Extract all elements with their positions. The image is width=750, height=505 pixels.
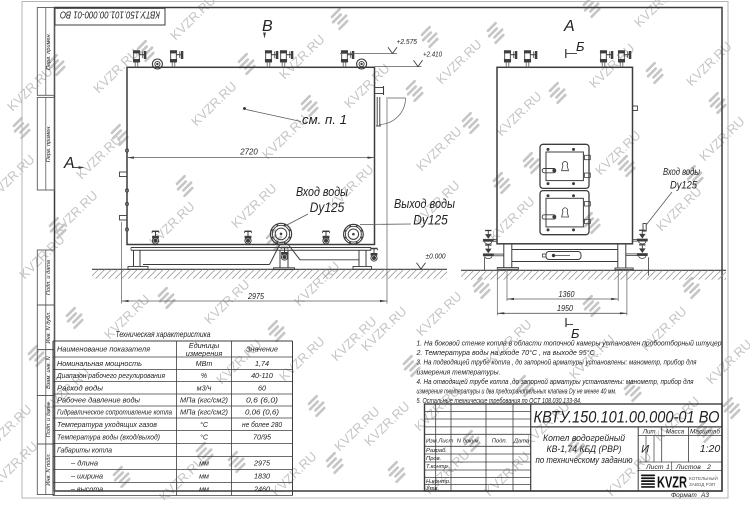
svg-text:Dy125: Dy125 [670,180,698,192]
svg-text:Н.контр.: Н.контр. [426,479,451,485]
svg-text:Перв. примен.: Перв. примен. [46,125,52,162]
svg-text:КВ-1,74 КБД (РВР): КВ-1,74 КБД (РВР) [547,444,622,454]
svg-text:– ширина: – ширина [70,472,103,481]
svg-text:КВТУ.150.101.00.000-01 ВО: КВТУ.150.101.00.000-01 ВО [60,9,160,21]
svg-text:2: 2 [706,464,711,471]
svg-text:KVZR: KVZR [657,475,687,492]
svg-text:2720: 2720 [239,148,258,157]
svg-text:3. На подводящей трубе котла: 3. На подводящей трубе котла , до запорн… [417,358,697,367]
svg-text:Габариты котла: Габариты котла [57,446,112,455]
svg-text:Вход воды: Вход воды [663,167,700,178]
svg-text:Подп.: Подп. [492,439,507,445]
svg-text:измерения температуры и два пр: измерения температуры и два предохраните… [417,387,617,396]
svg-text:1360: 1360 [559,290,576,299]
svg-text:Расход воды: Расход воды [57,383,104,392]
svg-text:1. На боковой стенке котла в: 1. На боковой стенке котла в области топ… [417,339,722,348]
svg-text:60: 60 [258,383,266,392]
svg-text:Dy125: Dy125 [413,213,448,228]
svg-text:1,74: 1,74 [255,359,269,368]
svg-text:Изм.Лист: Изм.Лист [426,439,453,445]
svg-text:+2.410: +2.410 [423,51,442,58]
svg-text:А: А [63,155,75,172]
svg-text:Дата: Дата [513,439,530,445]
svg-text:°С: °С [200,433,209,442]
svg-text:1: 1 [666,464,670,471]
svg-text:Лист: Лист [645,464,664,471]
svg-text:1:20: 1:20 [700,443,721,455]
svg-text:1950: 1950 [557,304,574,313]
svg-text:Подп. и дата: Подп. и дата [46,402,52,437]
svg-text:измерения температуры.: измерения температуры. [417,367,501,376]
svg-text:Масштаб: Масштаб [690,429,721,436]
svg-text:70/95: 70/95 [253,433,272,442]
svg-text:Формат: Формат [671,492,697,499]
svg-text:+2.575: +2.575 [397,39,418,46]
svg-text:2975: 2975 [253,459,271,468]
svg-text:– длина: – длина [70,459,98,468]
svg-text:Утв.: Утв. [425,486,439,492]
svg-text:0,6 (6,0): 0,6 (6,0) [246,396,278,405]
svg-text:мм: мм [199,485,209,494]
svg-text:Инв. N дубл.: Инв. N дубл. [46,311,52,343]
svg-text:Значение: Значение [246,345,278,354]
svg-text:МПа (кгс/см2): МПа (кгс/см2) [180,408,228,417]
svg-text:В: В [262,18,273,35]
svg-text:м3/ч: м3/ч [197,383,212,392]
svg-text:Вход воды: Вход воды [296,185,348,199]
svg-text:Наименование показателя: Наименование показателя [57,345,150,354]
svg-text:±0.000: ±0.000 [426,254,446,261]
svg-text:Котел водогрейный: Котел водогрейный [543,433,625,443]
svg-text:Разраб.: Разраб. [426,448,447,454]
svg-text:Инв. N подл.: Инв. N подл. [46,453,52,486]
svg-text:Техническая характеристика: Техническая характеристика [116,329,211,339]
svg-text:0,06 (0,6): 0,06 (0,6) [245,408,279,417]
svg-text:Лит.: Лит. [642,429,658,436]
svg-text:ЗАВОД РЭП: ЗАВОД РЭП [689,482,715,487]
svg-text:А3: А3 [700,492,709,499]
svg-text:КОТЕЛЬНЫЙ: КОТЕЛЬНЫЙ [689,474,718,481]
svg-text:МВт: МВт [196,359,213,368]
svg-text:А: А [563,18,575,35]
svg-text:Гидравлическое сопротивление к: Гидравлическое сопротивление котла [57,408,172,417]
svg-text:Dy125: Dy125 [310,200,345,215]
svg-text:Взам. инв. N: Взам. инв. N [46,355,52,389]
svg-text:Температура воды (вход/выход): Температура воды (вход/выход) [57,433,160,442]
svg-text:Диапазон рабочего регулировани: Диапазон рабочего регулирования [56,371,165,380]
svg-text:Рабочее давление воды: Рабочее давление воды [57,396,141,405]
svg-text:мм: мм [199,459,209,468]
svg-text:Масса: Масса [666,429,685,436]
svg-text:Подп. и дата: Подп. и дата [46,260,52,295]
svg-text:МПа (кгс/см2): МПа (кгс/см2) [180,396,228,405]
svg-text:N докум.: N докум. [457,439,480,445]
svg-text:1830: 1830 [254,472,270,481]
svg-text:40-110: 40-110 [251,371,273,380]
svg-text:измерения: измерения [186,349,223,358]
svg-text:Т.контр: Т.контр [426,464,449,470]
svg-text:Выход воды: Выход воды [394,197,455,211]
svg-text:%: % [201,371,208,380]
svg-text:2460: 2460 [253,485,270,494]
svg-text:Номинальная мощность: Номинальная мощность [57,359,142,368]
svg-text:4. На отводящей трубе котла ,: 4. На отводящей трубе котла ,до запорной… [417,377,694,386]
svg-text:Пров.: Пров. [426,456,441,462]
svg-text:Температура уходящих газов: Температура уходящих газов [57,420,157,429]
svg-text:КВТУ.150.101.00.000-01 ВО: КВТУ.150.101.00.000-01 ВО [534,408,720,426]
svg-text:Перв. примен.: Перв. примен. [46,33,52,70]
svg-text:°С: °С [200,420,209,429]
svg-text:мм: мм [199,472,209,481]
svg-text:2975: 2975 [247,292,265,301]
svg-text:см. п. 1: см. п. 1 [302,113,347,127]
svg-text:И: И [641,444,649,456]
svg-text:не более 280: не более 280 [242,420,282,429]
svg-text:Б: Б [576,39,585,54]
svg-text:по техническому заданию: по техническому заданию [536,455,633,465]
svg-text:Листов: Листов [675,464,701,471]
svg-text:– высота: – высота [70,485,103,494]
svg-text:2. Температура воды на входе: 2. Температура воды на входе 70°С , на в… [416,348,599,357]
